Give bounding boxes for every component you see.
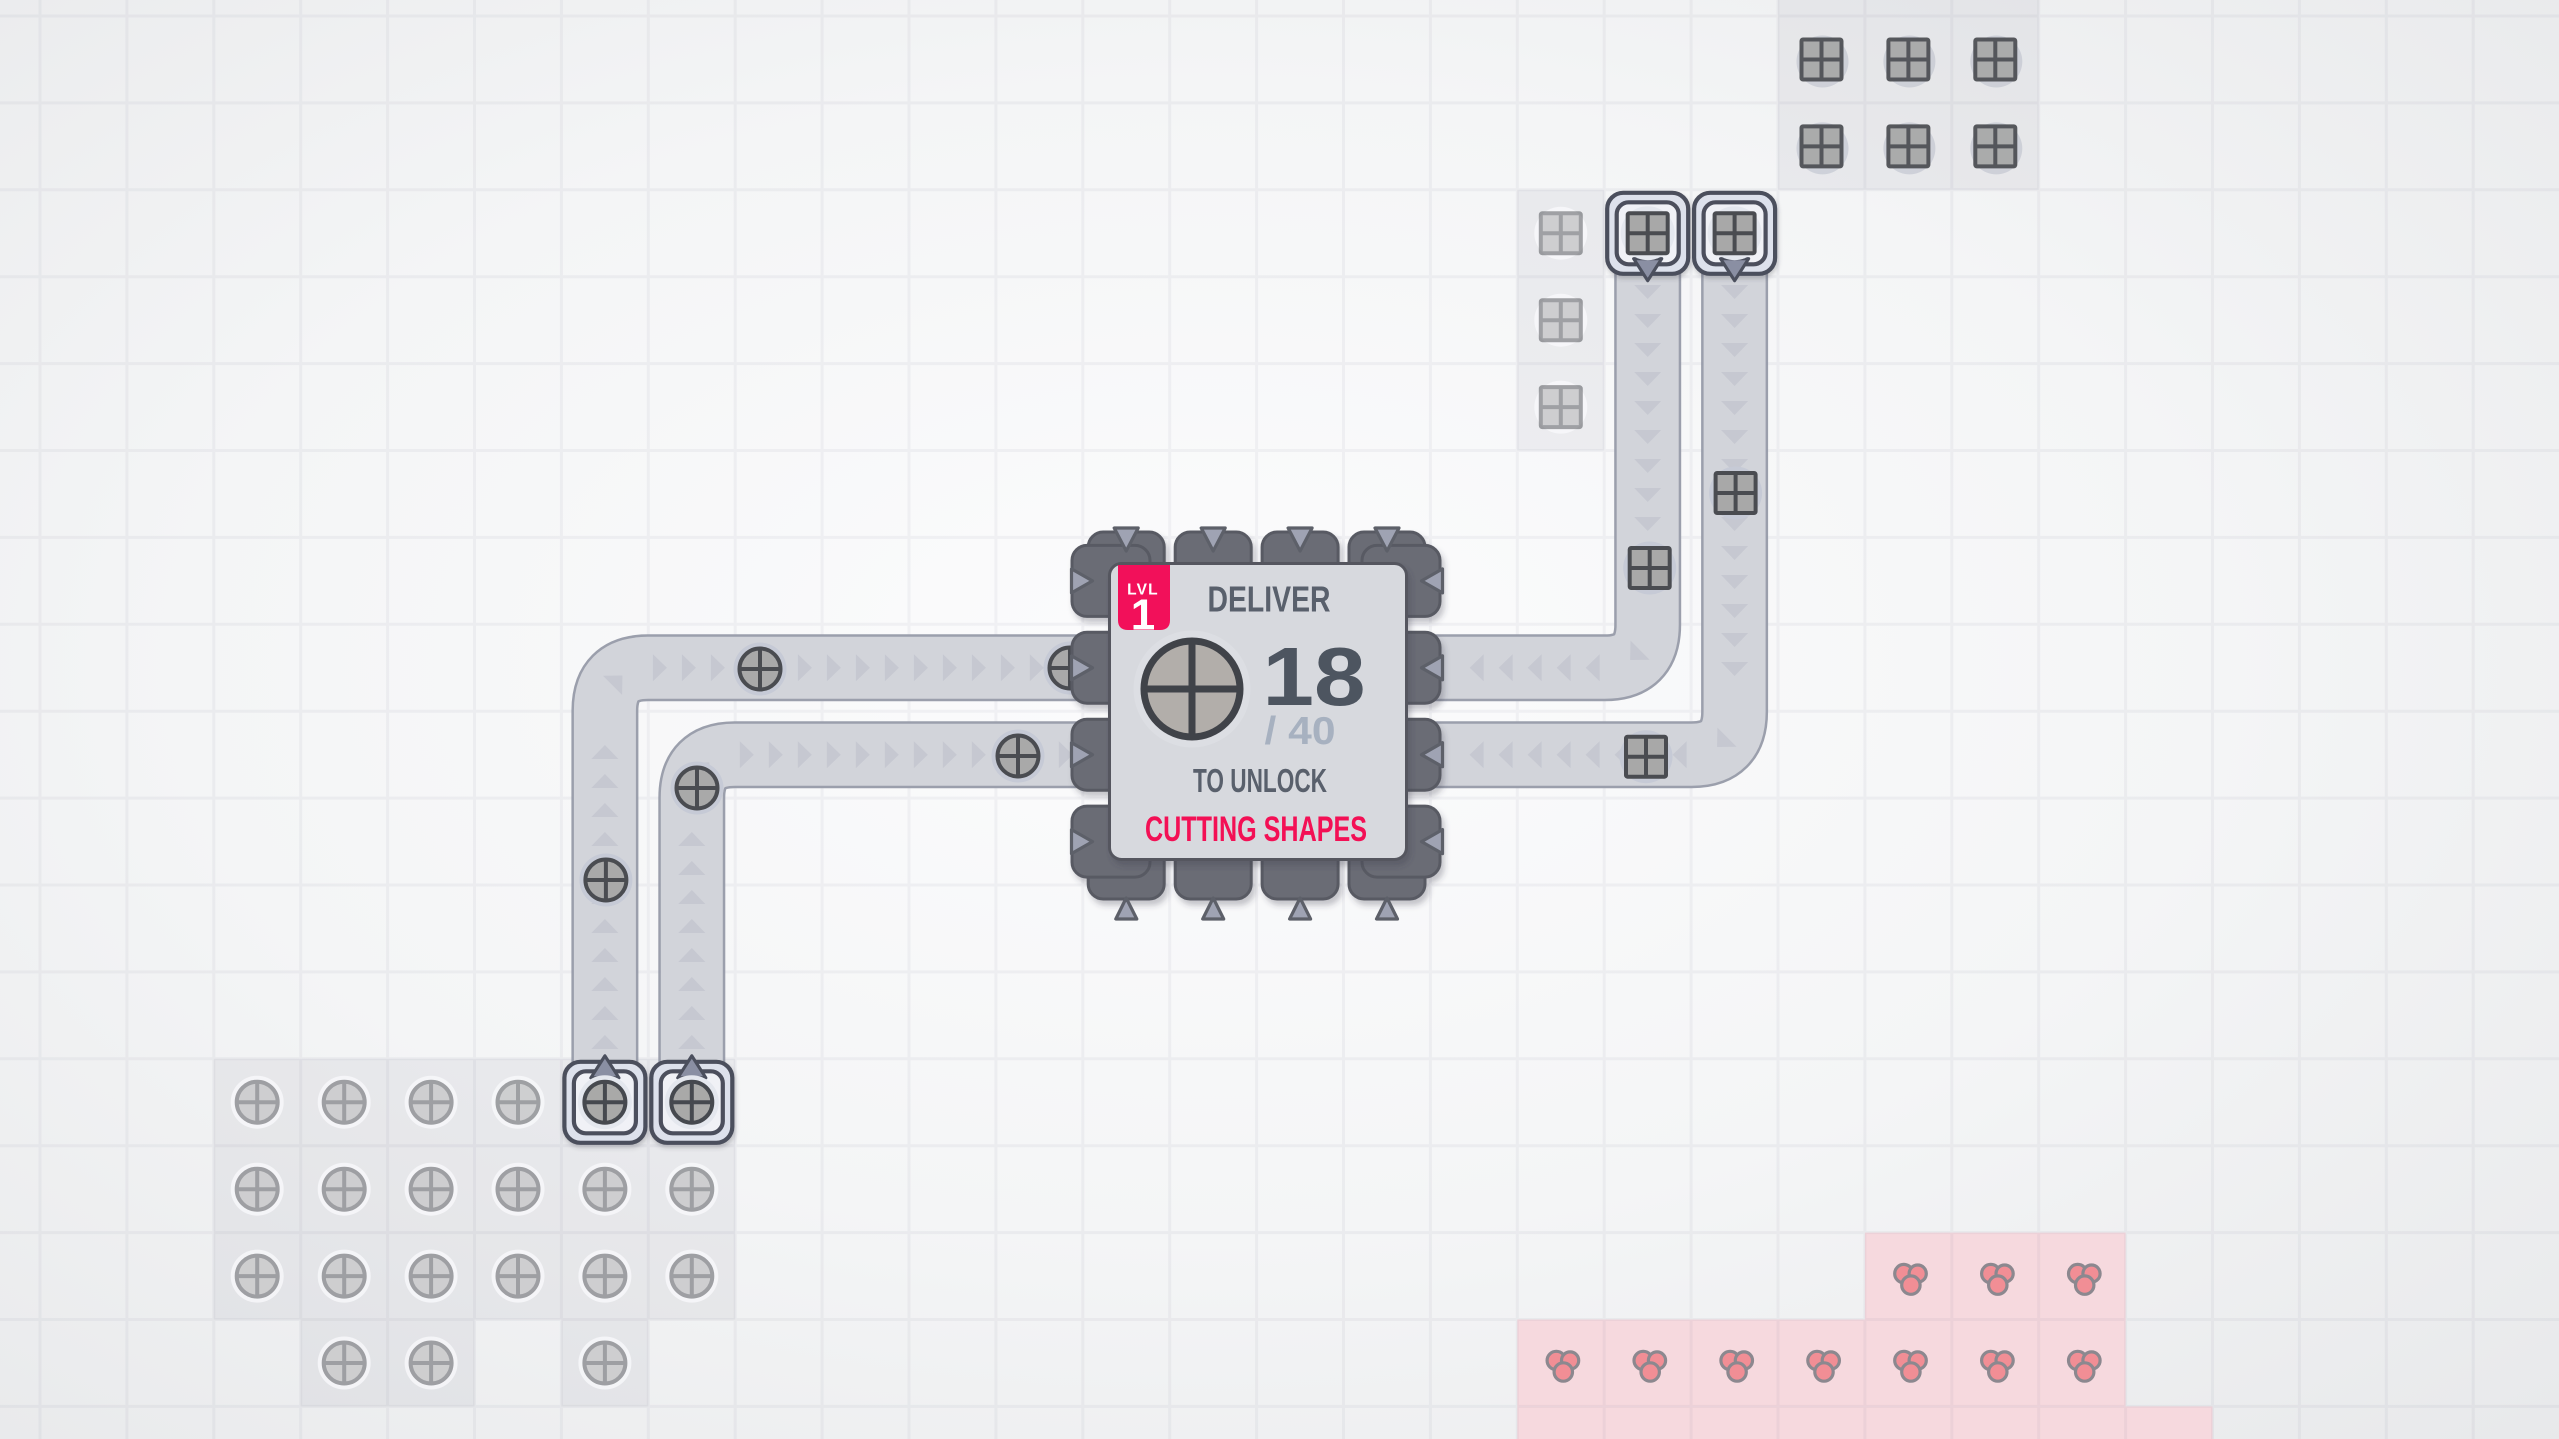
svg-text:1: 1: [1131, 591, 1155, 640]
svg-text:/ 40: / 40: [1265, 710, 1336, 753]
svg-text:CUTTING SHAPES: CUTTING SHAPES: [1145, 809, 1367, 849]
svg-text:TO UNLOCK: TO UNLOCK: [1193, 763, 1327, 800]
svg-text:DELIVER: DELIVER: [1208, 579, 1331, 620]
